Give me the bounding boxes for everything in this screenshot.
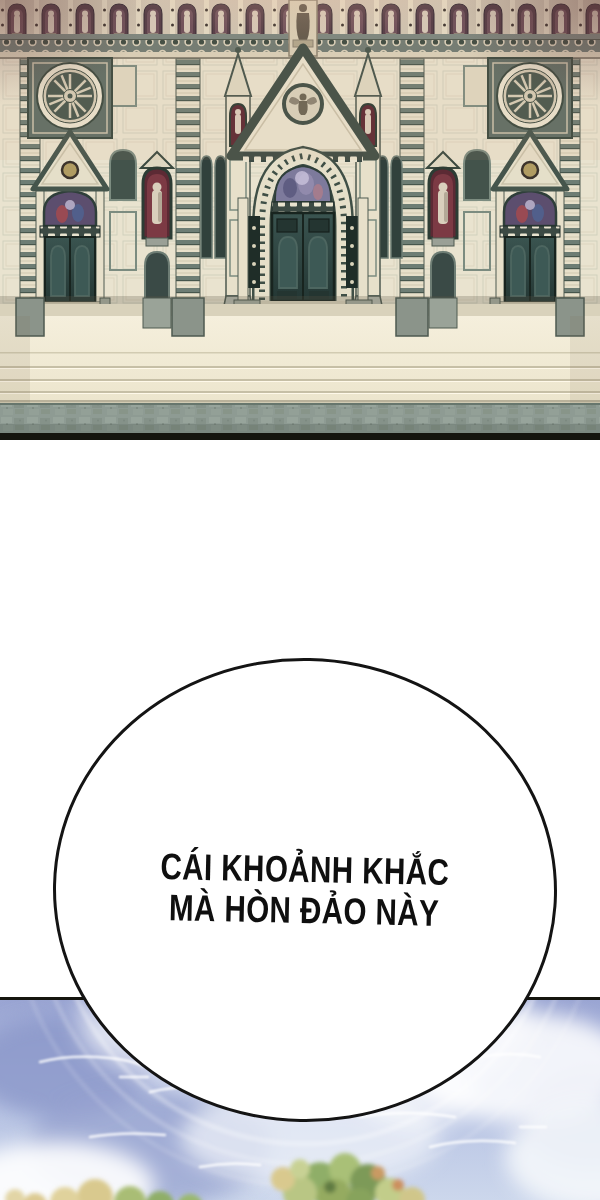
cathedral-illustration (0, 0, 600, 441)
cathedral-panel (0, 0, 600, 441)
speech-text-line-2: MÀ HÒN ĐẢO NÀY (160, 887, 450, 934)
central-doors (272, 213, 334, 301)
pavement (0, 403, 600, 433)
speech-text: CÁI KHOẢNH KHẮC MÀ HÒN ĐẢO NÀY (160, 846, 450, 934)
panel-border-line (0, 433, 600, 440)
steps (0, 296, 600, 404)
light-glow (0, 0, 600, 160)
comic-page: CÁI KHOẢNH KHẮC MÀ HÒN ĐẢO NÀY (0, 0, 600, 1200)
speech-text-line-1: CÁI KHOẢNH KHẮC (161, 846, 451, 893)
